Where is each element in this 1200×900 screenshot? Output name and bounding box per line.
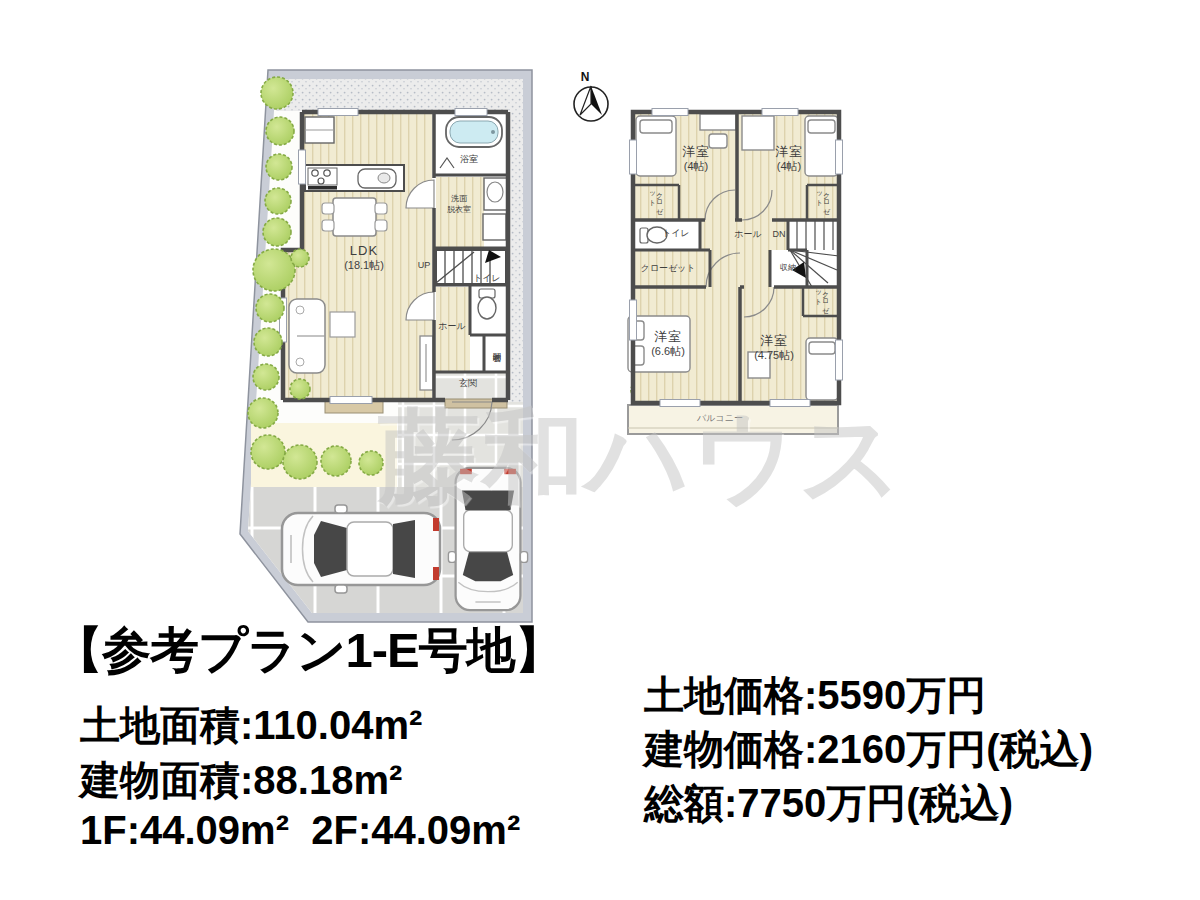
washbasin-icon bbox=[484, 178, 507, 210]
plan-title: 【参考プラン1-E号地】 bbox=[54, 618, 563, 684]
room-label-toilet-1f: トイレ bbox=[473, 274, 501, 283]
building-area-text: 建物面積:88.18m² bbox=[80, 753, 402, 808]
room-label-2f-ne: 洋室 bbox=[775, 145, 803, 159]
room-label-2f-nw: 洋室 bbox=[682, 145, 710, 159]
closet-label-nw: クロゼット bbox=[649, 187, 663, 217]
room-label-storage: 収納 bbox=[780, 264, 796, 272]
room-label-2f-sw: 洋室 bbox=[654, 330, 682, 344]
land-area-text: 土地面積:110.04m² bbox=[80, 698, 422, 753]
room-size-2f-ne: (4帖) bbox=[777, 161, 801, 173]
flyer-canvas: LDK (18.1帖) 浴室 洗面 脱衣室 UP ホール トイレ 玄関収納 玄関… bbox=[0, 0, 1200, 900]
room-label-entrance: 玄関 bbox=[459, 379, 477, 388]
room-label-ldk: LDK bbox=[350, 244, 378, 258]
room-size-2f-sw: (6.6帖) bbox=[651, 346, 685, 358]
room-label-hall-1f: ホール bbox=[438, 322, 465, 331]
room-size-2f-nw: (4帖) bbox=[684, 161, 708, 173]
building-price-text: 建物価格:2160万円(税込) bbox=[644, 722, 1093, 777]
room-label-hall-2f: ホール bbox=[734, 230, 761, 239]
stairs-label-dn: DN bbox=[773, 230, 786, 239]
compass-north-label: N bbox=[581, 71, 590, 84]
total-price-text: 総額:7750万円(税込) bbox=[644, 776, 1013, 831]
closet-label-ne: クロゼット bbox=[816, 187, 830, 217]
room-label-washroom-2: 脱衣室 bbox=[447, 206, 471, 214]
floor-areas-text: 1F:44.09m² 2F:44.09m² bbox=[80, 808, 520, 853]
sofa-icon bbox=[289, 299, 325, 373]
closet-label-se: クロゼット bbox=[815, 286, 829, 316]
compass-north-icon bbox=[574, 86, 608, 121]
room-label-2f-se: 洋室 bbox=[760, 334, 788, 348]
washer-icon bbox=[483, 214, 506, 240]
land-price-text: 土地価格:5590万円 bbox=[644, 668, 986, 723]
stairs-label-up: UP bbox=[418, 261, 431, 270]
room-label-toilet-2f: トイレ bbox=[662, 229, 690, 238]
kitchen-counter-icon bbox=[305, 165, 404, 191]
room-label-closet-main: クローゼット bbox=[640, 264, 695, 273]
room-label-bath: 浴室 bbox=[460, 155, 478, 164]
room-size-ldk: (18.1帖) bbox=[344, 260, 384, 272]
room-size-2f-se: (4.75帖) bbox=[754, 350, 794, 362]
watermark-logo: 藤和ハウス bbox=[378, 390, 905, 527]
toilet-icon-1f bbox=[478, 289, 496, 319]
room-label-washroom-1: 洗面 bbox=[451, 195, 467, 203]
bathtub-icon bbox=[446, 117, 502, 147]
coffee-table-icon bbox=[330, 312, 355, 337]
